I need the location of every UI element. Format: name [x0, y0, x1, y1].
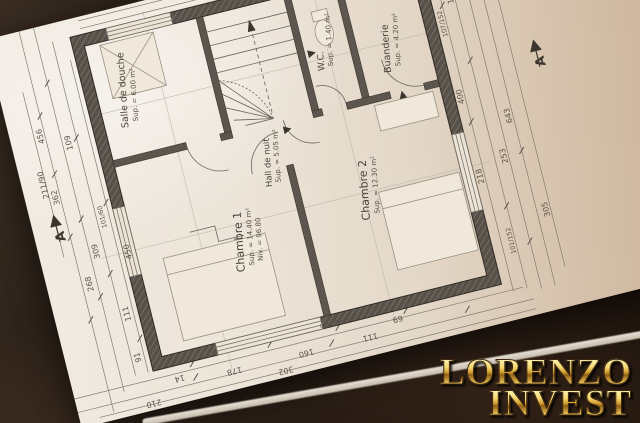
dimension-value: 253 — [498, 147, 510, 164]
room-label-chambre-2: Chambre 2 Sup. = 12.30 m² — [356, 156, 382, 221]
dimension-value: 149 — [444, 0, 456, 5]
dimension-value: 101/152 — [504, 227, 518, 255]
lorenzo-invest-watermark: LORENZO INVEST — [440, 357, 632, 419]
dimension-value: 101/60 — [96, 205, 109, 229]
room-label-hall-de-nuit: Hall de nuit Sup. = 5.05 m² — [261, 129, 283, 188]
dimension-value: 643 — [502, 107, 514, 124]
section-letter: A — [53, 230, 70, 243]
dimension-value: 109 — [63, 134, 75, 151]
section-marker-left: A — [47, 212, 69, 243]
section-arrow-icon — [527, 38, 542, 53]
dimension-value: 211/90 — [36, 170, 52, 199]
section-arrow-icon — [47, 213, 62, 228]
dimension-value: 111 — [362, 331, 379, 343]
dimension-value: 309 — [90, 243, 102, 260]
dimension-value: 210 — [145, 397, 162, 409]
dimension-value: 14 — [174, 373, 186, 384]
photo-of-floor-plan: Salle de douche Sup. = 6.00 m² W.C. Sup.… — [0, 0, 640, 423]
dimension-value: 305 — [540, 201, 552, 218]
dimension-value: 362 — [50, 189, 62, 206]
dimension-value: 111 — [121, 305, 133, 322]
room-label-buanderie: Buanderie Sup. = 4.20 m² — [379, 13, 403, 74]
room-level: Niv. = 96.80 — [254, 217, 265, 261]
dimension-value: 302 — [277, 364, 294, 376]
dimension-value: 160 — [298, 347, 315, 359]
dimension-value: 91 — [132, 351, 143, 363]
dimension-value: 178 — [226, 365, 243, 377]
dimension-value: 456 — [34, 128, 46, 145]
section-letter: A — [533, 54, 550, 67]
section-marker-right: A — [527, 37, 549, 68]
dimension-value: 268 — [83, 275, 95, 292]
